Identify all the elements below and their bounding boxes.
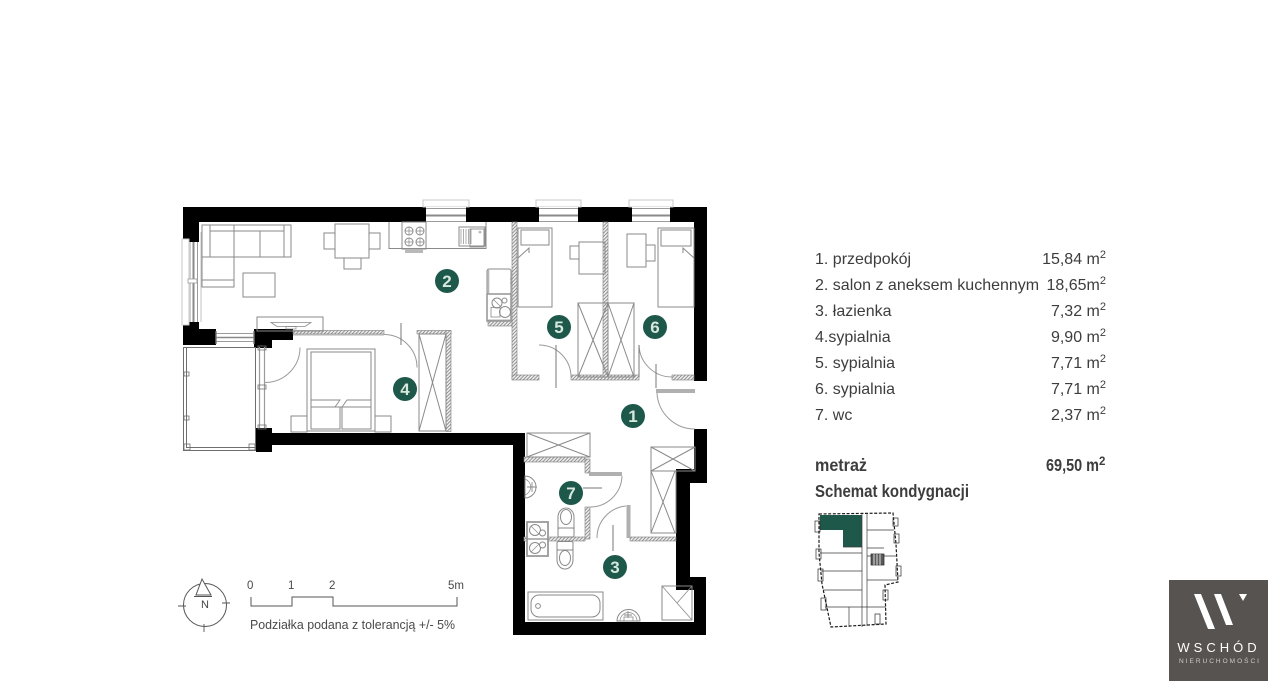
svg-text:Schemat kondygnacji: Schemat kondygnacji bbox=[815, 481, 969, 501]
svg-text:Podziałka podana z tolerancją: Podziałka podana z tolerancją +/- 5% bbox=[250, 617, 455, 632]
svg-text:5: 5 bbox=[554, 318, 563, 337]
svg-text:2,37 m2: 2,37 m2 bbox=[1051, 405, 1106, 424]
svg-text:5. sypialnia: 5. sypialnia bbox=[815, 355, 895, 372]
svg-text:9,90 m2: 9,90 m2 bbox=[1051, 327, 1106, 346]
svg-text:69,50 m: 69,50 m bbox=[1046, 455, 1099, 475]
svg-text:5m: 5m bbox=[448, 580, 464, 592]
svg-text:3: 3 bbox=[610, 558, 619, 577]
svg-text:15,84 m2: 15,84 m2 bbox=[1042, 249, 1106, 268]
svg-text:7,71 m2: 7,71 m2 bbox=[1051, 379, 1106, 398]
svg-text:1. przedpokój: 1. przedpokój bbox=[815, 251, 911, 268]
svg-text:2: 2 bbox=[1099, 456, 1105, 468]
svg-text:2: 2 bbox=[442, 272, 451, 291]
svg-text:4.sypialnia: 4.sypialnia bbox=[815, 329, 891, 346]
svg-text:7,32 m2: 7,32 m2 bbox=[1051, 301, 1106, 320]
svg-text:0: 0 bbox=[247, 580, 253, 592]
svg-text:NIERUCHOMOŚCI: NIERUCHOMOŚCI bbox=[1179, 656, 1261, 665]
svg-text:6: 6 bbox=[650, 318, 659, 337]
svg-text:7. wc: 7. wc bbox=[815, 407, 852, 424]
svg-text:N: N bbox=[201, 599, 209, 611]
svg-text:7: 7 bbox=[566, 484, 575, 503]
svg-text:6. sypialnia: 6. sypialnia bbox=[815, 381, 895, 398]
svg-text:metraż: metraż bbox=[815, 455, 867, 475]
svg-text:1: 1 bbox=[628, 407, 637, 426]
svg-text:7,71 m2: 7,71 m2 bbox=[1051, 353, 1106, 372]
svg-text:4: 4 bbox=[400, 380, 410, 399]
svg-text:1: 1 bbox=[288, 580, 294, 592]
svg-text:WSCHÓD: WSCHÓD bbox=[1177, 640, 1260, 655]
svg-text:3. łazienka: 3. łazienka bbox=[815, 303, 892, 320]
svg-text:2: 2 bbox=[329, 580, 335, 592]
svg-text:18,65m2: 18,65m2 bbox=[1047, 275, 1107, 294]
svg-text:2. salon z aneksem kuchennym: 2. salon z aneksem kuchennym bbox=[815, 277, 1039, 294]
